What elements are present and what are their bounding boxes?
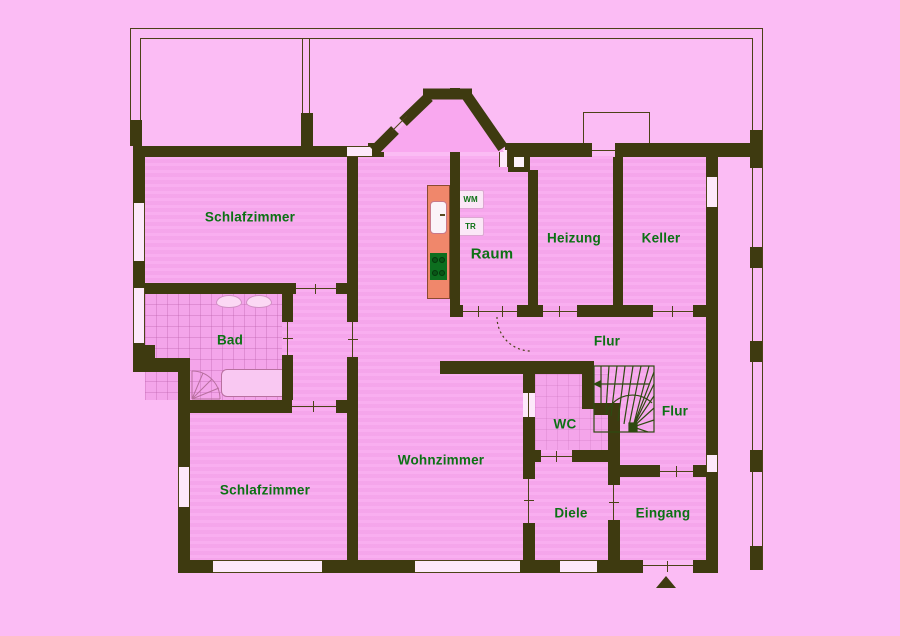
staircase: [593, 366, 654, 432]
room-label-keller: Keller: [642, 231, 681, 246]
shower: [192, 371, 220, 399]
room-label-diele: Diele: [554, 506, 587, 521]
room-label-schlafzimmer-bottom: Schlafzimmer: [220, 483, 310, 498]
floor-plan: WM TR: [0, 0, 900, 636]
room-label-heizung: Heizung: [547, 231, 601, 246]
room-label-wc: WC: [554, 417, 577, 432]
room-label-wohnzimmer: Wohnzimmer: [398, 453, 485, 468]
room-label-flur-upper: Flur: [594, 334, 620, 349]
entrance-arrow-icon: [656, 576, 676, 588]
room-label-flur-lower: Flur: [662, 404, 688, 419]
room-label-eingang: Eingang: [636, 506, 691, 521]
plan-overlay: [0, 0, 900, 636]
room-label-raum: Raum: [471, 246, 513, 263]
room-label-schlafzimmer-top: Schlafzimmer: [205, 210, 295, 225]
bay-window: [374, 94, 504, 152]
room-label-bad: Bad: [217, 333, 243, 348]
door-swing-arc: [497, 317, 531, 351]
